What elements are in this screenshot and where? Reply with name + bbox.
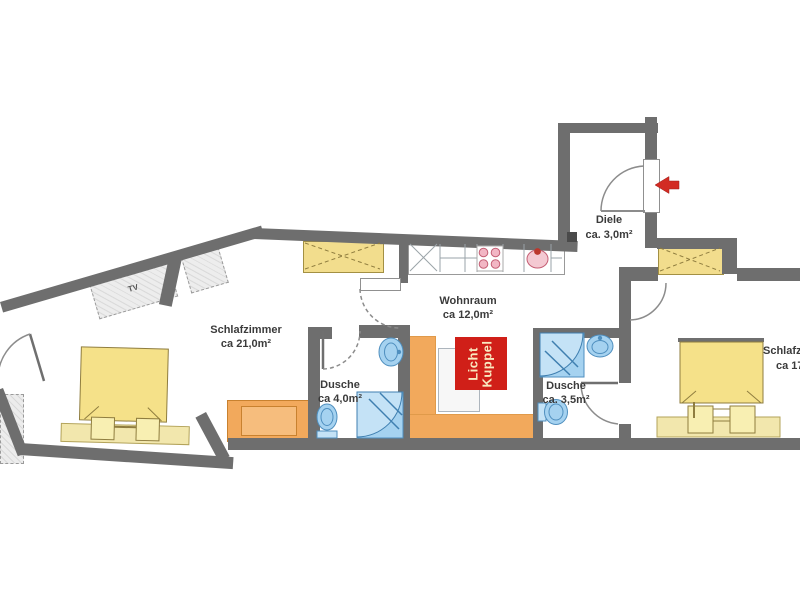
- bed-left-mattress: [79, 347, 168, 422]
- door-leaf-terrace: [30, 334, 44, 381]
- door-swing-arc-terrace: [0, 334, 30, 380]
- bed-left-pillow: [136, 418, 160, 441]
- room-label-schlafzimmer-rechts: Schlafzi: [763, 345, 800, 358]
- skylight-label: Licht Kuppel: [467, 340, 495, 387]
- wall-bath4-top-a: [308, 327, 332, 339]
- bed-right: [657, 338, 780, 437]
- sofa-bedroom-seat: [241, 406, 297, 436]
- bed-right-pillow: [730, 406, 755, 433]
- room-area-wohnraum: ca 12,0m²: [418, 309, 518, 322]
- toilet-left: [317, 404, 337, 438]
- room-area-schlafzimmer-links: ca 21,0m²: [196, 338, 296, 351]
- bed-right-center-rail: [713, 409, 730, 421]
- bed-left-base: [61, 423, 189, 444]
- bed-left: [61, 346, 191, 444]
- room-label-diele: Diele: [583, 214, 635, 227]
- bed-left-center-rail: [114, 427, 136, 428]
- bed-right-pillow: [688, 406, 713, 433]
- washbasin-right: [587, 335, 613, 357]
- wall-bath35-top: [533, 328, 629, 338]
- room-label-schlafzimmer-links: Schlafzimmer: [196, 324, 296, 337]
- wall-stub-kitchen: [399, 240, 408, 283]
- bed-left-fold: [84, 406, 98, 419]
- room-area-dusche-links: ca 4,0m²: [303, 393, 377, 406]
- room-area-schlafzimmer-rechts: ca 17: [776, 360, 800, 373]
- door-swing-arc-bedroom-wohnraum: [360, 289, 399, 328]
- bed-right-base: [657, 417, 780, 437]
- wall-divider-stub: [619, 424, 631, 439]
- bed-right-fold: [747, 391, 761, 403]
- bed-right-headboard: [678, 338, 764, 342]
- floor-plan: TV Licht Kuppel: [0, 0, 800, 600]
- wall-right-horizontal: [737, 268, 800, 281]
- room-label-dusche-rechts: Dusche: [534, 380, 598, 393]
- wall-niche-right: [722, 238, 737, 274]
- wardrobe-right: [658, 246, 724, 275]
- shower-right: [540, 333, 584, 377]
- bed-right-mattress: [680, 342, 763, 403]
- bed-left-fold: [147, 408, 161, 421]
- room-label-wohnraum: Wohnraum: [418, 295, 518, 308]
- door-swing-arc-diele-bedroom: [630, 283, 666, 320]
- sofa-bedroom: [227, 400, 311, 442]
- door-swing-arc-entrance: [601, 166, 644, 211]
- wall-corridor-left: [558, 123, 570, 243]
- wall-l-corner: [619, 267, 658, 281]
- wall-bottom-right: [228, 438, 800, 450]
- room-label-dusche-links: Dusche: [308, 379, 372, 392]
- wall-bath4-right: [398, 325, 410, 439]
- bed-left-pillow: [91, 417, 115, 440]
- bed-right-fold: [682, 391, 696, 403]
- skylight-box: Licht Kuppel: [455, 337, 507, 390]
- room-area-diele: ca. 3,0m²: [576, 229, 642, 242]
- wall-bottom-left: [19, 443, 233, 469]
- door-leaf-entrance: [643, 159, 660, 213]
- wall-corridor-top: [558, 123, 658, 133]
- door-leaf-bedroom-wohnraum: [360, 278, 401, 291]
- wardrobe-center: [303, 241, 384, 273]
- sofa-wohnraum-bottom-arm: [408, 414, 535, 439]
- room-area-dusche-rechts: ca. 3,5m²: [530, 394, 602, 407]
